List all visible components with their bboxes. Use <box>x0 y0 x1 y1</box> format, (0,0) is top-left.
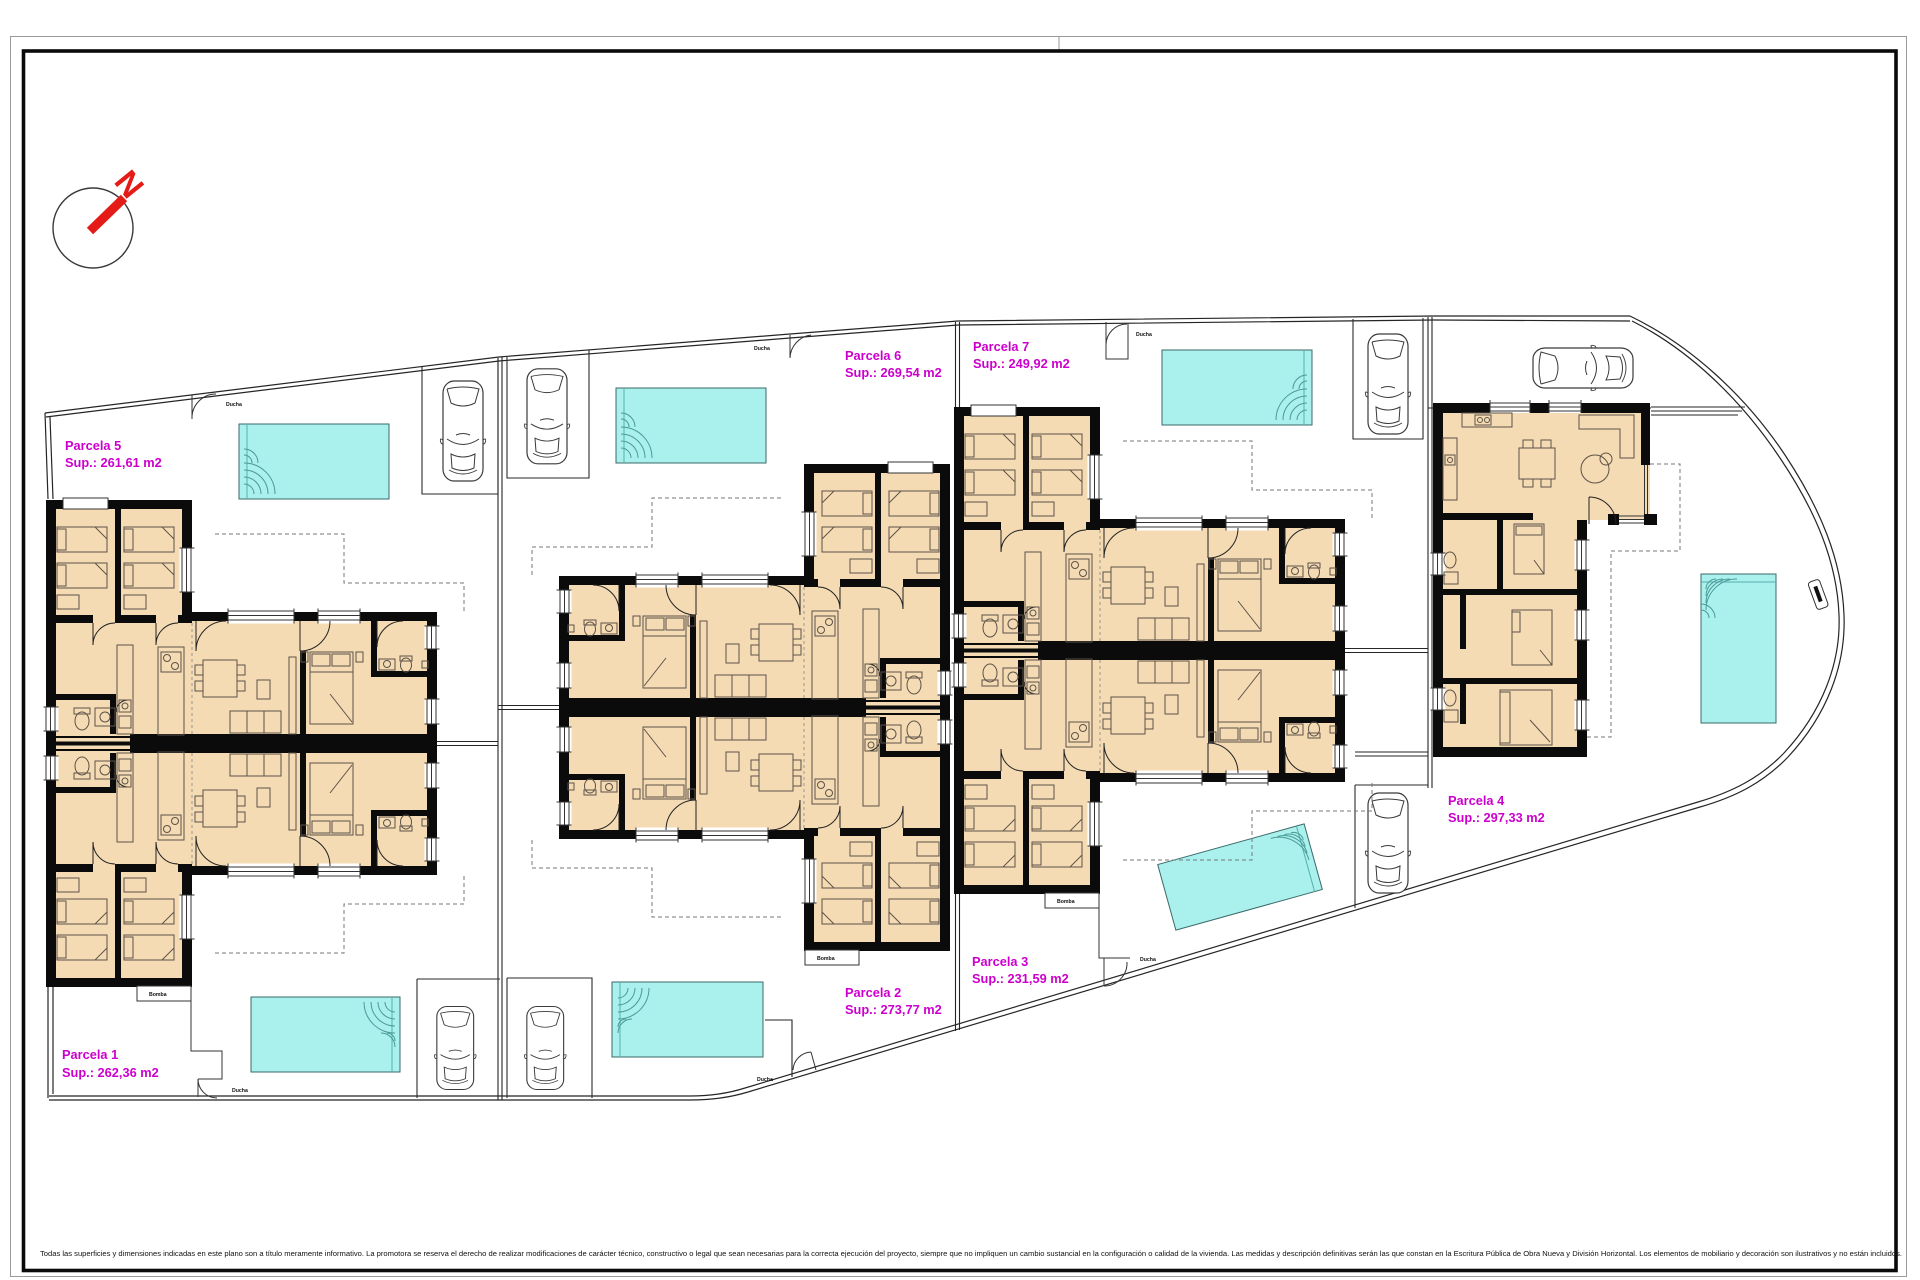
svg-text:Ducha: Ducha <box>757 1077 773 1083</box>
svg-text:Parcela 2: Parcela 2 <box>845 985 901 1000</box>
svg-text:Todas las superficies y dimens: Todas las superficies y dimensiones indi… <box>40 1249 1902 1258</box>
svg-text:Sup.: 269,54 m2: Sup.: 269,54 m2 <box>845 365 942 380</box>
svg-text:Ducha: Ducha <box>1140 957 1156 963</box>
svg-text:Parcela 4: Parcela 4 <box>1448 793 1505 808</box>
svg-text:Parcela 7: Parcela 7 <box>973 339 1029 354</box>
svg-text:Sup.: 231,59 m2: Sup.: 231,59 m2 <box>972 971 1069 986</box>
svg-text:Parcela 6: Parcela 6 <box>845 348 901 363</box>
svg-text:Sup.: 273,77 m2: Sup.: 273,77 m2 <box>845 1002 942 1017</box>
svg-text:Parcela 5: Parcela 5 <box>65 438 121 453</box>
svg-text:Ducha: Ducha <box>1136 332 1152 338</box>
svg-text:Sup.: 297,33 m2: Sup.: 297,33 m2 <box>1448 810 1545 825</box>
svg-text:Ducha: Ducha <box>226 402 242 408</box>
svg-text:Bomba: Bomba <box>817 956 835 962</box>
svg-text:Bomba: Bomba <box>149 992 167 998</box>
svg-text:Ducha: Ducha <box>754 346 770 352</box>
svg-text:Bomba: Bomba <box>1057 899 1075 905</box>
svg-text:Parcela 3: Parcela 3 <box>972 954 1028 969</box>
svg-text:Sup.: 249,92 m2: Sup.: 249,92 m2 <box>973 356 1070 371</box>
svg-text:Sup.: 262,36 m2: Sup.: 262,36 m2 <box>62 1065 159 1080</box>
svg-text:Parcela 1: Parcela 1 <box>62 1047 118 1062</box>
svg-text:Sup.: 261,61 m2: Sup.: 261,61 m2 <box>65 455 162 470</box>
svg-text:Ducha: Ducha <box>232 1088 248 1094</box>
